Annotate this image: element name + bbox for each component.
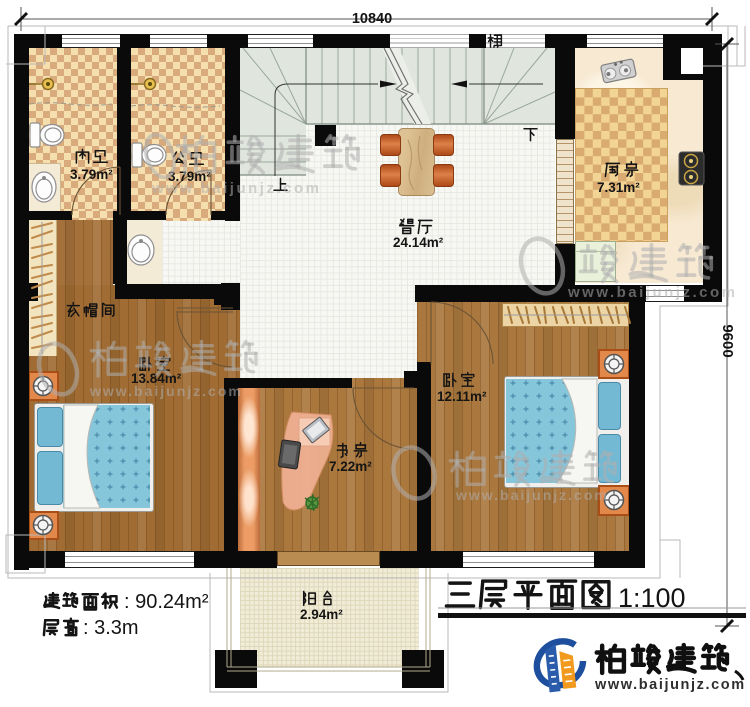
svg-text:www.baijunjz.com: www.baijunjz.com xyxy=(89,383,243,399)
svg-text:3.79m²: 3.79m² xyxy=(70,167,113,182)
svg-text:www.baijunjz.com: www.baijunjz.com xyxy=(567,284,737,301)
svg-text:24.14m²: 24.14m² xyxy=(393,235,444,250)
svg-text:: 90.24m²: : 90.24m² xyxy=(124,591,209,613)
svg-text:7.22m²: 7.22m² xyxy=(329,459,372,474)
svg-text:2.94m²: 2.94m² xyxy=(300,607,343,622)
svg-text:www.baijunjz.com: www.baijunjz.com xyxy=(594,677,746,693)
svg-text:12.11m²: 12.11m² xyxy=(437,389,487,404)
svg-text:7.31m²: 7.31m² xyxy=(597,180,640,195)
svg-text:www.baijunjz.com: www.baijunjz.com xyxy=(151,180,321,197)
svg-text:www.baijunjz.com: www.baijunjz.com xyxy=(455,487,609,503)
svg-text:: 3.3m: : 3.3m xyxy=(83,617,139,639)
svg-text:9600: 9600 xyxy=(719,324,736,357)
svg-text:10840: 10840 xyxy=(352,11,392,27)
